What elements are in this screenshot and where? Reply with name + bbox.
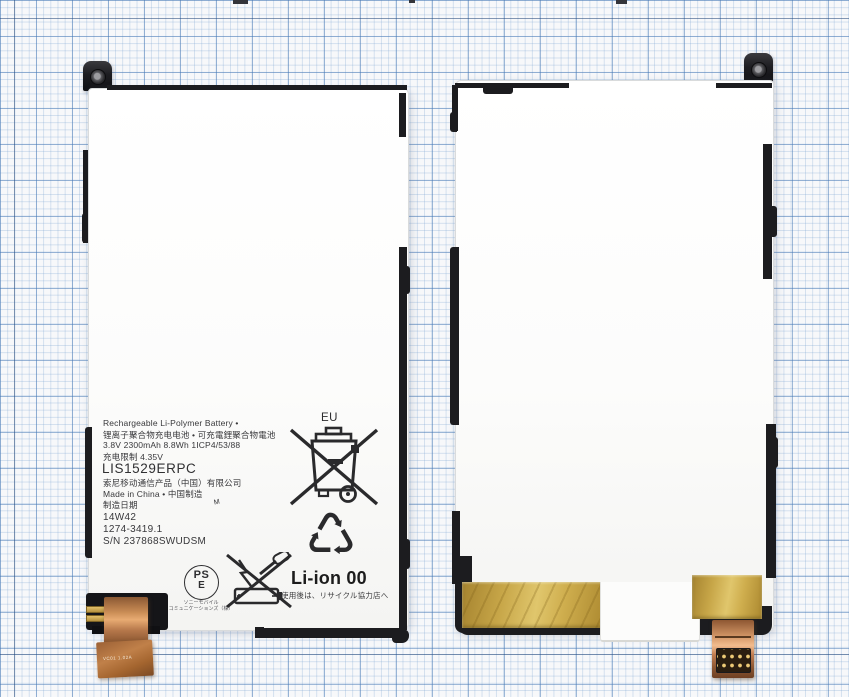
- recycle-mobius-icon: ♺: [305, 505, 357, 565]
- screw-hole-icon: [90, 69, 106, 85]
- paper-dark-line-vertical: [14, 0, 15, 697]
- pse-e-text: E: [185, 581, 218, 591]
- connector-gold-pin: [86, 606, 106, 613]
- photo-edge-mark: [233, 0, 248, 4]
- product-photo-battery-on-graph-paper: Rechargeable Li-Polymer Battery • 锂离子聚合物…: [0, 0, 849, 697]
- photo-edge-mark: [409, 0, 415, 3]
- label-serial-number: S/N 237868SWUDSM: [103, 536, 206, 547]
- frame-left-lug: [450, 112, 457, 132]
- label-mfg-date-cjk: 制造日期: [103, 499, 138, 511]
- frame-left-segment: [450, 247, 459, 425]
- frame-right-segment: [399, 247, 407, 630]
- label-part-number: 1274-3419.1: [103, 524, 162, 535]
- frame-right-lug: [771, 437, 778, 468]
- no-disassemble-icon: [224, 552, 294, 610]
- frame-left-lug: [82, 213, 88, 243]
- frame-right-lug: [404, 539, 410, 569]
- gold-tape-right: [692, 575, 762, 619]
- flex-marking-1: VC01: [103, 655, 117, 661]
- li-ion-label: Li-ion 00: [291, 568, 367, 589]
- frame-top-edge: [107, 85, 407, 90]
- flex-marking-2: 1.02A: [118, 655, 133, 661]
- right-battery-body: [455, 80, 774, 633]
- crossed-wheelie-bin-icon: [289, 423, 379, 509]
- frame-bottom-notch: [255, 627, 264, 635]
- flex-trace: [715, 636, 751, 638]
- frame-bottom-right-cap: [392, 629, 409, 643]
- photo-edge-mark: [616, 0, 627, 4]
- flex-cable-flap: VC01 1.02A: [96, 640, 154, 679]
- frame-right-lug: [770, 206, 777, 237]
- flex-connector-pads: [716, 648, 751, 673]
- label-model-number: LIS1529ERPC: [102, 461, 196, 476]
- frame-right-lug: [404, 266, 410, 294]
- white-pouch-patch: [600, 582, 700, 642]
- frame-bottom-edge: [255, 628, 400, 638]
- recycle-note-jp: 使用後は、リサイクル協力店へ: [281, 590, 388, 601]
- frame-left-segment: [85, 427, 92, 558]
- handwritten-mark: M: [213, 498, 221, 506]
- frame-right-segment: [399, 93, 406, 137]
- label-title: Rechargeable Li-Polymer Battery •: [103, 418, 238, 428]
- paper-dark-line-horizontal-top: [0, 18, 849, 19]
- left-battery-body: [88, 88, 409, 631]
- label-date-code: 14W42: [103, 512, 136, 523]
- frame-top-lug: [483, 88, 513, 94]
- label-specs: 3.8V 2300mAh 8.8Wh 1ICP4/53/88: [103, 440, 240, 450]
- connector-gold-pin: [86, 615, 106, 622]
- frame-top-edge: [716, 83, 772, 88]
- gold-tape-left: [462, 582, 605, 628]
- pse-mark: PS E: [184, 565, 219, 600]
- screw-hole-icon: [751, 62, 767, 78]
